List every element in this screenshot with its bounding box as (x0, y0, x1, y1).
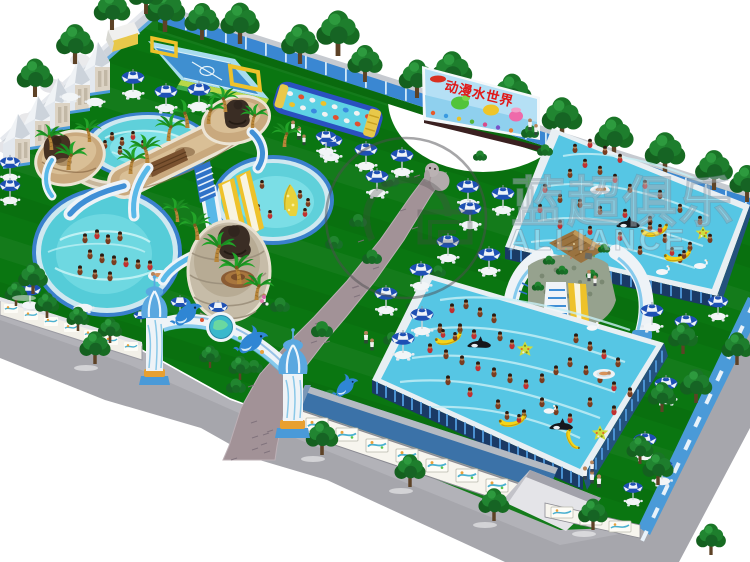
svg-text:ALLIANCE: ALLIANCE (508, 224, 688, 257)
